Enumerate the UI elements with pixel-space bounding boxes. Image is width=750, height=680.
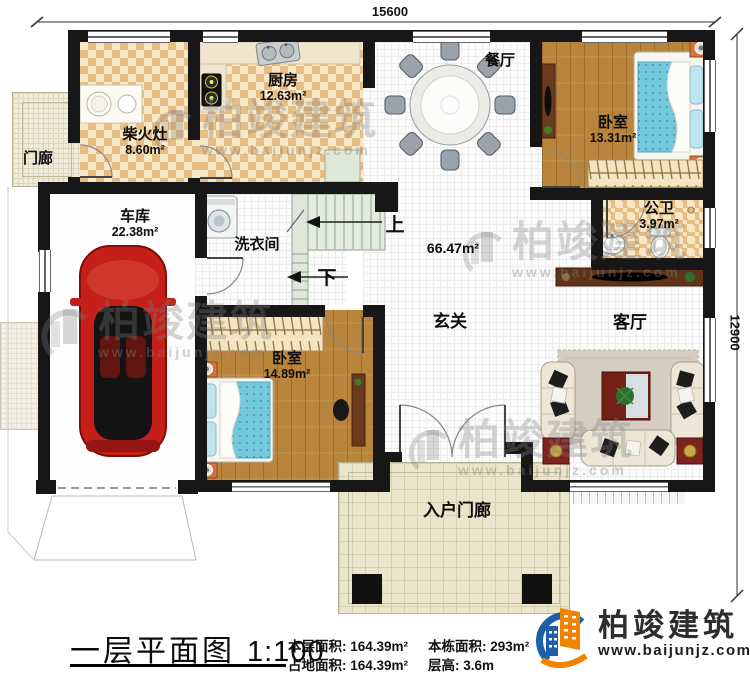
room-name: 洗衣间	[220, 236, 294, 253]
stat-row: 本层面积: 164.39m²	[288, 637, 408, 656]
wall	[375, 182, 398, 212]
room-name: 餐厅	[468, 52, 532, 69]
wall	[38, 194, 50, 252]
stat-row: 本栋面积: 293m²	[428, 637, 529, 656]
room-label-bedroom-bottom: 卧室 14.89m²	[242, 350, 332, 381]
wall	[363, 42, 375, 88]
title-underline	[70, 664, 286, 667]
room-label-laundry: 洗衣间	[220, 236, 294, 253]
wall	[38, 292, 50, 482]
floor-plan: 柏竣建筑 www.baijunjz.com 柏竣建筑 www.baijunjz.…	[0, 0, 750, 680]
window	[39, 250, 51, 292]
wall	[521, 442, 533, 492]
room-name: 卧室	[242, 350, 332, 367]
room-name: 厨房	[238, 72, 328, 89]
wall	[178, 480, 198, 494]
room-name: 柴火灶	[100, 126, 190, 143]
stairs-up-label: 上	[384, 210, 406, 237]
stat-label: 层高:	[428, 658, 460, 673]
kitchen-cabinet	[325, 150, 360, 182]
room-area: 8.60m²	[100, 143, 190, 157]
room-label-dining: 餐厅	[468, 52, 532, 69]
dimension-top: 15600	[340, 4, 440, 19]
room-name: 卧室	[568, 114, 658, 131]
tv-stand	[542, 64, 555, 138]
coffee-table	[602, 372, 650, 420]
wall	[195, 305, 325, 317]
room-area: 14.89m²	[242, 367, 332, 381]
wall	[195, 194, 207, 258]
window	[88, 31, 170, 43]
window	[704, 208, 716, 248]
room-name: 公卫	[616, 200, 702, 217]
room-label-garage: 车库 22.38m²	[90, 208, 180, 239]
stairs-down-label: 下	[316, 263, 338, 290]
room-name: 门廊	[6, 150, 70, 167]
window	[704, 60, 716, 132]
wall	[38, 182, 398, 194]
room-label-chaihuozao: 柴火灶 8.60m²	[100, 126, 190, 157]
room-label-porch: 门廊	[6, 150, 70, 167]
wall	[591, 258, 715, 270]
firewood-stove	[80, 85, 142, 123]
tv-cabinet	[556, 268, 706, 286]
stat-value: 3.6m	[463, 658, 494, 673]
wall	[36, 480, 56, 494]
window	[413, 31, 490, 43]
stat-row: 层高: 3.6m	[428, 656, 529, 675]
stat-label: 本层面积:	[288, 639, 347, 654]
wall	[188, 178, 200, 182]
room-name: 入户门廊	[405, 502, 509, 519]
room-label-entry-porch: 入户门廊	[405, 502, 509, 519]
stat-value: 164.39m²	[350, 639, 408, 654]
wall	[378, 452, 390, 492]
wall	[530, 188, 715, 200]
room-area: 13.31m²	[568, 131, 658, 145]
room-label-kitchen: 厨房 12.63m²	[238, 72, 328, 103]
room-name: 车库	[90, 208, 180, 225]
desk	[333, 374, 365, 446]
room-label-bedroom-top: 卧室 13.31m²	[568, 114, 658, 145]
stat-value: 293m²	[490, 639, 529, 654]
room-label-bathroom: 公卫 3.97m²	[616, 200, 702, 231]
car	[70, 246, 176, 456]
room-label-foyer: 玄关	[418, 313, 482, 330]
open-area-label: 66.47m²	[408, 240, 498, 256]
room-area: 3.97m²	[616, 217, 702, 231]
room-name: 玄关	[418, 313, 482, 330]
dimension-right: 12900	[728, 293, 743, 373]
brand-name: 柏竣建筑	[598, 610, 750, 642]
room-label-living: 客厅	[598, 314, 662, 331]
window	[582, 31, 667, 43]
area-stats-right: 本栋面积: 293m² 层高: 3.6m	[428, 637, 529, 675]
area-stats-left: 本层面积: 164.39m² 占地面积: 164.39m²	[288, 637, 408, 675]
window	[704, 318, 716, 402]
gas-stove	[202, 74, 221, 106]
window	[570, 482, 668, 492]
room-area: 22.38m²	[90, 225, 180, 239]
bed	[197, 378, 273, 462]
window	[232, 482, 330, 492]
stat-label: 占地面积:	[288, 658, 347, 673]
stat-row: 占地面积: 164.39m²	[288, 656, 408, 675]
room-area: 12.63m²	[238, 89, 328, 103]
brand-logo-block: 柏竣建筑 www.baijunjz.com	[534, 602, 750, 668]
stat-value: 164.39m²	[350, 658, 408, 673]
room-name: 客厅	[598, 314, 662, 331]
wall	[68, 42, 80, 143]
brand-logo-icon	[534, 602, 590, 668]
wardrobe	[588, 160, 703, 187]
brand-url: www.baijunjz.com	[598, 642, 750, 660]
window	[203, 31, 238, 43]
wall	[195, 296, 207, 492]
stat-label: 本栋面积:	[428, 639, 487, 654]
